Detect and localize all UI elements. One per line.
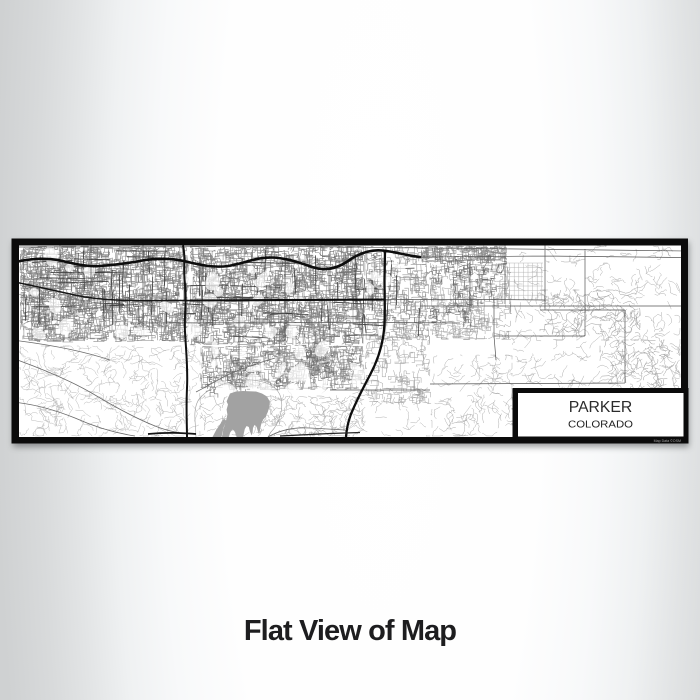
svg-text:COLORADO: COLORADO xyxy=(568,420,633,431)
svg-text:PARKER: PARKER xyxy=(569,399,633,416)
svg-text:Map Data ©OSM: Map Data ©OSM xyxy=(654,439,681,443)
